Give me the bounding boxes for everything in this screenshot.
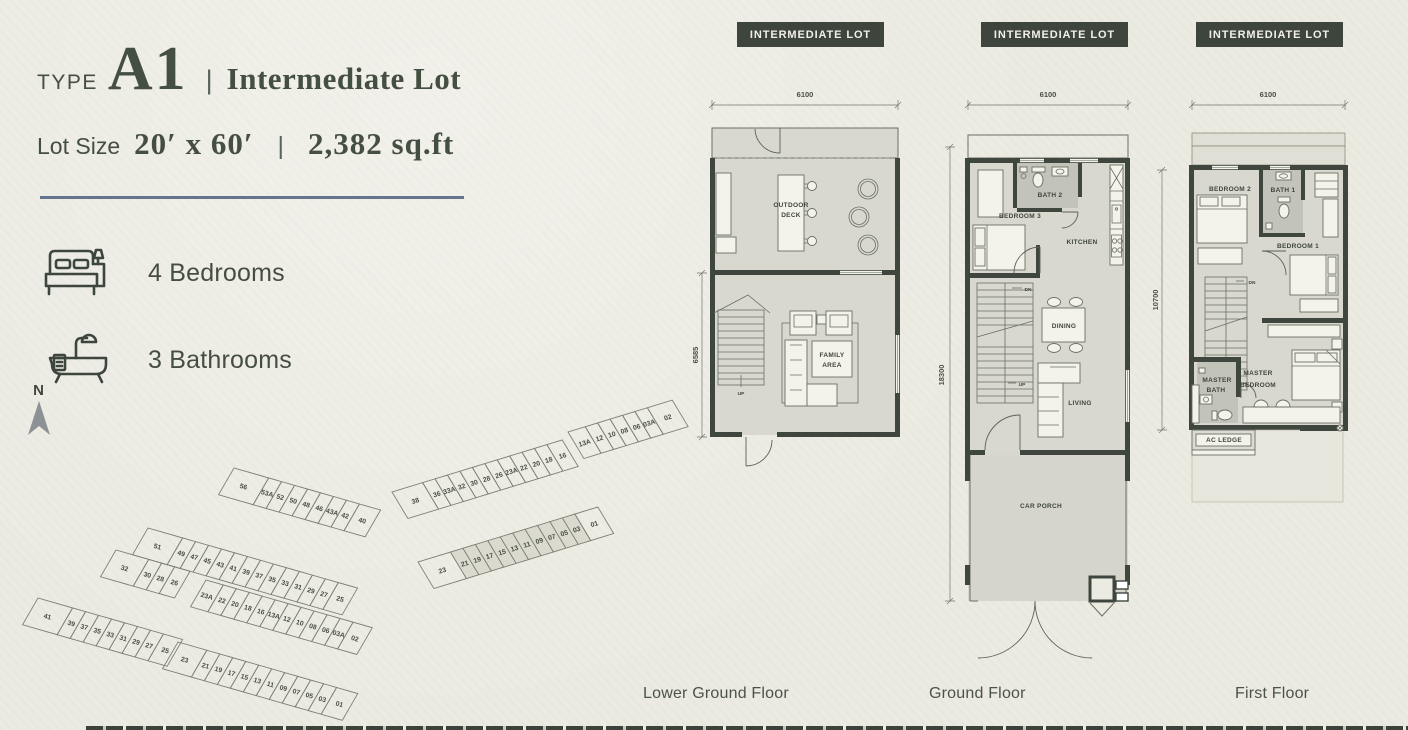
site-lot-number: 10	[607, 431, 616, 440]
page-bottom-edge	[86, 726, 1408, 730]
site-lot-number: 25	[335, 595, 344, 604]
site-lot-number: 11	[266, 681, 275, 690]
site-lot-number: 01	[335, 700, 344, 709]
site-lot-number: 23	[180, 656, 189, 665]
room-label-master-bath: BATH	[1207, 387, 1226, 394]
floor-name-lower-ground: Lower Ground Floor	[643, 685, 789, 703]
room-label-family-area: FAMILY	[819, 352, 844, 359]
bed-icon	[40, 242, 118, 304]
site-lot-number: 02	[350, 635, 359, 644]
site-lot-number: 22	[519, 464, 528, 473]
site-lot-number: 15	[240, 673, 249, 682]
site-lot-number: 18	[544, 456, 553, 465]
site-lot-number: 29	[306, 587, 315, 596]
site-lot-number: 26	[495, 471, 504, 480]
site-lot-number: 12	[282, 615, 291, 624]
room-label-outdoor-deck: DECK	[781, 212, 801, 219]
site-lot-number: 05	[305, 692, 314, 701]
site-lot-number: 20	[532, 460, 541, 469]
room-label-bedroom-3: BEDROOM 3	[999, 213, 1041, 220]
site-lot-number: 08	[308, 623, 317, 632]
dimension-label: 18300	[937, 365, 946, 386]
title-separator: |	[206, 65, 213, 96]
site-lot-number: 02	[663, 414, 672, 423]
site-lot-number: 31	[293, 583, 302, 592]
room-label-car-porch: CAR PORCH	[1020, 503, 1062, 510]
floor-plan-lower-ground: 6100 6585 OUTDOOR DECK	[690, 85, 925, 485]
stair-label-dn: DN	[1025, 287, 1032, 293]
site-lot-number: 46	[314, 505, 323, 514]
site-lot-number: 49	[176, 550, 185, 559]
site-lot-number: 27	[144, 642, 153, 651]
size-separator: |	[278, 132, 285, 161]
room-label-outdoor-deck: OUTDOOR	[773, 202, 808, 209]
dimension-label: 6585	[691, 347, 700, 364]
lot-size-label: Lot Size	[37, 133, 120, 160]
site-lot-number: 41	[228, 565, 237, 574]
site-lot-number: 47	[189, 553, 198, 562]
brochure-page: TYPE A1 | Intermediate Lot Lot Size 20′ …	[0, 0, 1408, 730]
type-label: TYPE	[37, 71, 98, 95]
room-label-bath-1: BATH 1	[1271, 187, 1296, 194]
site-lot-number: 39	[66, 620, 75, 629]
floor-name-ground: Ground Floor	[929, 685, 1026, 703]
site-lot-number: 37	[79, 623, 88, 632]
site-lot-row: 23A2220181613A1210080603A02	[191, 578, 373, 657]
site-lot-number: 37	[254, 572, 263, 581]
room-label-ac-ledge: AC LEDGE	[1206, 437, 1242, 444]
badge-intermediate-lot-1: INTERMEDIATE LOT	[737, 22, 884, 47]
room-label-master-bedroom: BEDROOM	[1240, 382, 1276, 389]
room-label-living: LIVING	[1068, 400, 1091, 407]
site-lot-number: 43	[215, 561, 224, 570]
site-lot-number: 35	[92, 627, 101, 636]
site-lot-number: 52	[275, 493, 284, 502]
site-lot-number: 29	[131, 638, 140, 647]
floor-plan-ground: 6100 18300 BEDROOM 3	[920, 85, 1180, 670]
site-lot-number: 12	[595, 435, 604, 444]
site-lot-number: 45	[202, 557, 211, 566]
site-lot-number: 32	[120, 565, 129, 574]
site-lot-number: 30	[470, 479, 479, 488]
site-lot-number: 56	[239, 483, 248, 492]
site-lot-number: 38	[411, 497, 420, 506]
room-family-area: UP FAMILY AREA	[710, 275, 900, 466]
site-lot-row: 232119171513110907050301	[418, 505, 614, 591]
dimension-label: 6100	[797, 90, 814, 99]
site-lot-number: 35	[267, 576, 276, 585]
site-lot-number: 09	[279, 684, 288, 693]
lot-size-row: Lot Size 20′ x 60′ | 2,382 sq.ft	[37, 126, 454, 162]
site-lot-number: 06	[632, 423, 641, 432]
site-lot-number: 31	[118, 635, 127, 644]
ac-ledge: AC LEDGE	[1192, 430, 1255, 455]
site-lot-number: 13A	[578, 438, 592, 448]
site-lot-row: 413937353331292725	[23, 596, 183, 668]
site-lot-number: 48	[301, 501, 310, 510]
site-lot-number: 13	[253, 677, 262, 686]
site-lot-number: 33	[280, 579, 289, 588]
room-outdoor-deck: OUTDOOR DECK	[710, 128, 900, 273]
dimension-label: 6100	[1260, 90, 1277, 99]
room-label-kitchen: KITCHEN	[1067, 239, 1098, 246]
feature-bathrooms-label: 3 Bathrooms	[148, 346, 292, 375]
site-lot-number: 16	[558, 452, 567, 461]
site-lot-number: 40	[357, 517, 366, 526]
stair-label-dn: DN	[1249, 280, 1256, 286]
site-plan-map: 5653A5250484643A424051494745434139373533…	[20, 380, 692, 728]
page-title: TYPE A1 | Intermediate Lot	[37, 42, 461, 98]
site-lot-number: 16	[256, 608, 265, 617]
feature-bedrooms: 4 Bedrooms	[40, 242, 285, 304]
room-label-bedroom-1: BEDROOM 1	[1277, 243, 1319, 250]
meter-box	[1090, 577, 1128, 616]
lot-type-label: Intermediate Lot	[227, 61, 461, 97]
site-lot-number: 27	[319, 591, 328, 600]
site-lot-number: 23	[438, 567, 447, 576]
stair-label-up: UP	[738, 391, 745, 397]
site-lot-number: 42	[340, 512, 349, 521]
header-divider	[40, 196, 464, 199]
site-lot-number: 08	[620, 427, 629, 436]
dimension-label: 6100	[1040, 90, 1057, 99]
site-lot-number: 06	[321, 627, 330, 636]
room-label-dining: DINING	[1052, 323, 1077, 330]
site-lot-number: 36	[432, 490, 441, 499]
room-car-porch: CAR PORCH	[965, 455, 1130, 658]
room-label-bedroom-2: BEDROOM 2	[1209, 186, 1251, 193]
dimension-label: 10700	[1151, 290, 1160, 311]
room-label-master-bedroom: MASTER	[1243, 370, 1272, 377]
stair-label-up: UP	[1019, 382, 1026, 388]
floor-plan-first: 6100 10700 BEDROOM 2 B	[1150, 85, 1408, 530]
site-lot-number: 26	[170, 579, 179, 588]
type-value: A1	[108, 42, 188, 98]
site-lot-number: 20	[230, 600, 239, 609]
site-lot-number: 30	[143, 571, 152, 580]
site-lot-number: 07	[292, 688, 301, 697]
site-lot-number: 21	[201, 662, 210, 671]
site-lot-number: 10	[295, 619, 304, 628]
site-lot-number: 32	[457, 483, 466, 492]
site-lot-number: 18	[243, 604, 252, 613]
site-lot-number: 03	[318, 696, 327, 705]
room-label-family-area: AREA	[822, 362, 842, 369]
site-lot-row: 13A1210080603A02	[568, 398, 688, 461]
feature-bedrooms-label: 4 Bedrooms	[148, 259, 285, 288]
site-lot-number: 28	[156, 575, 165, 584]
site-lot-row: 232119171513110907050301	[163, 640, 358, 722]
room-label-master-bath: MASTER	[1202, 377, 1231, 384]
site-lot-number: 51	[153, 543, 162, 552]
site-lot-number: 22	[217, 597, 226, 606]
site-lot-number: 17	[227, 670, 236, 679]
badge-intermediate-lot-3: INTERMEDIATE LOT	[1196, 22, 1343, 47]
badge-intermediate-lot-2: INTERMEDIATE LOT	[981, 22, 1128, 47]
site-lot-number: 39	[241, 568, 250, 577]
car-porch-gate	[978, 601, 1092, 658]
site-lot-number: 25	[160, 647, 169, 656]
site-lot-row: 383633A3230282623A22201816	[392, 438, 578, 521]
room-label-bath-2: BATH 2	[1038, 192, 1063, 199]
lot-size-value: 20′ x 60′	[134, 126, 253, 162]
lot-area-value: 2,382 sq.ft	[308, 126, 454, 162]
site-lot-number: 50	[288, 497, 297, 506]
site-lot-number: 19	[214, 666, 223, 675]
floor-name-first: First Floor	[1235, 685, 1309, 703]
site-lot-number: 33	[105, 631, 114, 640]
site-lot-number: 28	[482, 475, 491, 484]
site-lot-number: 41	[43, 613, 52, 622]
site-lot-number: 01	[590, 520, 599, 529]
room-bath-1: BATH 1	[1259, 170, 1305, 237]
site-lot-number: 23A	[200, 592, 214, 602]
site-lot-row: 5653A5250484643A4240	[219, 466, 381, 539]
